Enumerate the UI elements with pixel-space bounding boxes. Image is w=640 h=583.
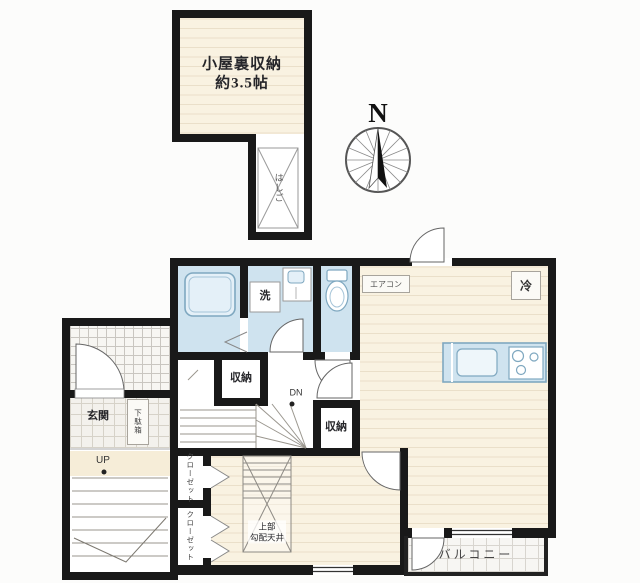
stairs-down-label: DN [290,387,303,398]
wall-segment [512,528,556,538]
washer-label: 洗 [260,290,271,304]
wall-segment [170,258,178,575]
wall-segment [172,10,180,142]
porch [70,326,170,392]
wall-segment [203,508,211,516]
shoe-cabinet-box: 下駄箱 [127,399,149,445]
wall-segment [303,352,325,360]
balcony-label: バルコニー [439,548,514,563]
attic-room-label: 小屋裏収納 約3.5帖 [202,55,282,93]
closet-door-gap [203,516,211,562]
wall-segment [444,528,452,538]
floor-plan: 小屋裏収納 約3.5帖 はしご N 洗 エアコン 冷 収納 収納 DN 玄関 下… [0,0,640,583]
wall-segment [62,318,170,326]
attic-room-name: 小屋裏収納 [202,55,282,74]
attic-ladder-label: はしご [272,173,283,203]
bathroom [172,258,248,360]
wall-segment [203,456,211,466]
washroom [240,258,321,360]
wall-segment [203,488,211,500]
sloped-ceiling-note-line2: 勾配天井 [250,532,284,543]
sloped-ceiling-note-line1: 上部 [250,521,284,532]
aircon-box: エアコン [362,275,410,293]
ldk-entry-door-icon [410,228,444,262]
wall-segment [62,318,70,580]
wall-segment [353,565,408,575]
wall-segment [452,258,556,266]
wall-segment [313,266,321,360]
wall-segment [203,558,211,568]
balcony-wall [404,572,548,576]
fridge-box: 冷 [511,271,541,300]
closet-lower-label: クローゼット [185,511,194,562]
closet-upper-label: クローゼット [185,453,194,504]
wall-segment [172,258,412,266]
entrance-floor [70,398,170,448]
wall-segment [352,266,360,360]
closet-door-gap [203,466,211,488]
entrance-label: 玄関 [87,410,109,424]
wall-segment [62,390,75,398]
wall-segment [240,266,248,318]
wall-segment [248,134,256,240]
wall-segment [170,565,313,575]
shoe-cabinet-label: 下駄箱 [133,409,144,435]
wall-segment [172,10,312,18]
compass-needle-icon [369,128,378,188]
aircon-label: エアコン [370,279,402,290]
wall-segment [214,398,268,406]
wall-segment [124,390,170,398]
balcony-wall [404,536,408,576]
wall-segment [248,232,312,240]
wall-segment [350,352,360,360]
wall-segment [170,448,360,456]
wall-segment [62,572,178,580]
north-label: N [368,98,388,128]
stairs-up-label: UP [96,455,110,468]
compass-icon [346,128,410,192]
attic-room-size: 約3.5帖 [202,74,282,93]
stair-landing [70,451,170,476]
fridge-label: 冷 [520,277,532,294]
wall-segment [172,134,256,142]
balcony-wall [544,538,548,576]
compass-needle-icon [378,128,387,188]
bedroom-storage-label: 収納 [325,421,347,435]
wall-segment [548,258,556,538]
sloped-ceiling-note: 上部 勾配天井 [248,520,286,543]
hall-storage-label: 収納 [230,372,252,386]
wall-segment [304,10,312,240]
